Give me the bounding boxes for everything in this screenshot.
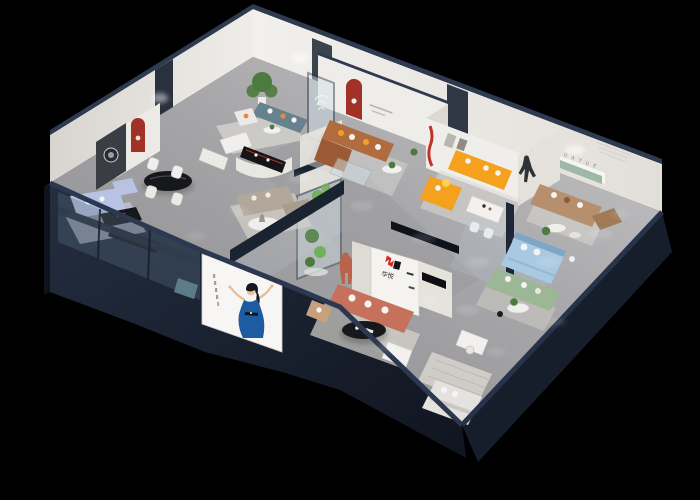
- bed-pillow: [521, 244, 528, 251]
- sofa-pillow: [280, 113, 285, 118]
- bedside-table: [569, 256, 575, 262]
- isometric-scene: H U A Y U E: [0, 0, 700, 500]
- spotlight-glow: [230, 208, 250, 216]
- sofa-pillow: [435, 185, 441, 191]
- sofa-cushion: [348, 294, 355, 301]
- spotlight-glow: [536, 257, 560, 267]
- spotlight-glow: [546, 318, 566, 326]
- sofa-pillow: [495, 170, 501, 176]
- spotlight-glow: [420, 296, 440, 304]
- potted-tree: [247, 85, 260, 98]
- table-plant: [510, 298, 518, 306]
- cactus-plant: [305, 257, 315, 267]
- dining-red-arch-niche: [131, 118, 145, 152]
- floor-plant: [542, 227, 550, 235]
- round-side-table: [569, 232, 581, 238]
- bed-pillow: [441, 387, 447, 393]
- sofa-pillow: [535, 288, 541, 294]
- sofa-pillow: [505, 276, 511, 282]
- sofa-pillow: [465, 158, 471, 164]
- bed-pillow: [452, 391, 458, 397]
- table-decor: [482, 204, 485, 207]
- poster-vertical-text-mark: [215, 288, 217, 292]
- sofa-pillow: [99, 196, 104, 201]
- spotlight-glow: [186, 232, 206, 240]
- sofa-pillow: [551, 192, 557, 198]
- sofa-pillow: [267, 108, 272, 113]
- wall-light-glow: [291, 53, 309, 63]
- spotlight-glow: [350, 201, 374, 211]
- pebble-bed: [304, 268, 328, 276]
- desk-chair: [466, 346, 474, 354]
- sofa-pillow: [265, 192, 270, 197]
- armchair-pillow: [316, 307, 321, 312]
- spotlight-glow: [412, 233, 436, 243]
- sofa-pillow: [577, 202, 583, 208]
- woman-hand: [229, 286, 232, 289]
- sofa-cushion: [381, 306, 388, 313]
- spotlight-glow: [610, 210, 630, 218]
- poster-vertical-text-mark: [214, 281, 216, 285]
- poster-vertical-text-mark: [216, 295, 218, 299]
- sofa-pillow: [251, 195, 256, 200]
- spotlight-glow: [466, 257, 490, 267]
- black-stool: [497, 311, 503, 317]
- sofa-pillow: [483, 165, 489, 171]
- sofa-pillow: [363, 139, 369, 145]
- poster-vertical-text-mark: [213, 274, 215, 278]
- floor-plant: [410, 148, 417, 155]
- armchair-pillow: [244, 114, 249, 119]
- sofa-pillow: [338, 130, 344, 136]
- woman-hand: [271, 285, 274, 288]
- round-wall-art-inner: [108, 152, 114, 158]
- west-corner-wall-edge: [44, 183, 50, 295]
- sofa-pillow: [375, 144, 381, 150]
- spotlight-glow: [588, 229, 612, 239]
- wall-light-glow: [152, 93, 168, 103]
- table-decor: [489, 208, 492, 211]
- poster-vertical-text-mark: [217, 302, 219, 306]
- sofa-pillow: [349, 134, 355, 140]
- table-plant: [389, 162, 396, 169]
- spotlight-glow: [486, 348, 506, 356]
- spotlight-glow: [376, 343, 400, 353]
- potted-tree: [265, 85, 278, 98]
- glow-cushion: [442, 179, 450, 187]
- spotlight-glow: [288, 173, 312, 183]
- table-plant: [270, 125, 275, 130]
- sofa-cushion: [364, 300, 371, 307]
- bed-pillow: [534, 249, 541, 256]
- arch-figurine: [136, 136, 141, 141]
- sofa-pillow: [521, 282, 527, 288]
- round-white-table: [507, 303, 529, 313]
- arch-figurine: [351, 98, 356, 103]
- console-decor: [266, 158, 269, 161]
- sofa-pillow: [564, 197, 570, 203]
- showroom-render: H U A Y U E: [0, 0, 700, 500]
- dress-sparkle: [250, 312, 252, 314]
- spotlight-glow: [456, 305, 480, 315]
- console-decor: [254, 153, 257, 156]
- sofa-pillow: [291, 117, 296, 122]
